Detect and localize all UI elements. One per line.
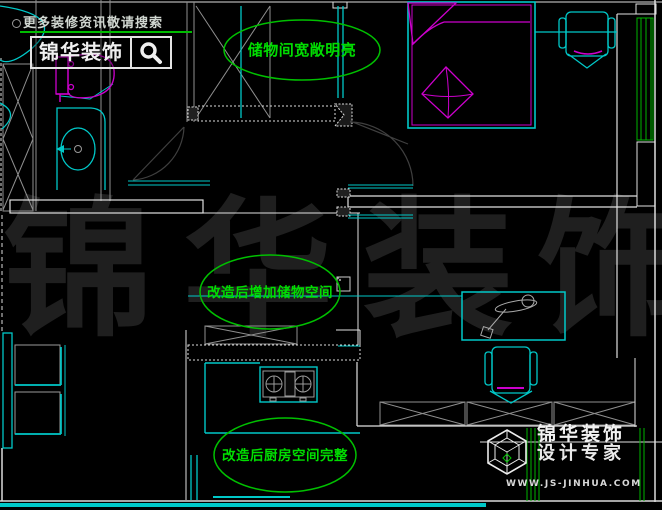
kitchen-wall-hatch xyxy=(188,345,360,360)
watermark-char: 装 xyxy=(363,182,513,358)
bedroom-door xyxy=(350,121,413,186)
brand-search-box: 锦华装饰 xyxy=(30,36,172,69)
annotation-added-storage: 改造后增加储物空间 xyxy=(207,284,333,301)
pillow xyxy=(422,67,473,118)
gas-stove xyxy=(263,371,314,401)
cad-floorplan-screenshot: { "header": { "search_hint": "更多装修资讯敬请搜索… xyxy=(0,0,662,510)
bathroom-door xyxy=(133,127,184,180)
study-cabinet-row xyxy=(380,402,635,425)
kitchen-counter xyxy=(205,363,360,433)
bedroom-chair xyxy=(559,12,615,68)
watermark-char: 锦 xyxy=(3,182,153,358)
footer-logo: 锦华装饰 设计专家 WWW.JS-JINHUA.COM xyxy=(484,424,660,489)
storage-closet-x xyxy=(196,6,270,118)
bed-linen xyxy=(412,5,531,125)
footer-tagline: 设计专家 xyxy=(537,444,625,463)
door-swings xyxy=(133,121,413,186)
footer-company: 锦华装饰 xyxy=(537,424,625,444)
watermark-char: 饰 xyxy=(537,182,662,358)
blanket-fold xyxy=(408,3,456,44)
bullet-icon xyxy=(12,19,21,28)
search-icon xyxy=(138,40,164,66)
search-hint-text: 更多装修资讯敬请搜索 xyxy=(23,12,163,31)
annotation-kitchen: 改造后厨房空间完整 xyxy=(222,447,348,464)
appliance-box xyxy=(15,392,60,434)
search-button[interactable] xyxy=(130,38,170,67)
cube-logo-icon xyxy=(484,428,530,476)
annotation-storage-room: 储物间宽敞明亮 xyxy=(248,41,357,59)
footer-website: WWW.JS-JINHUA.COM xyxy=(506,479,660,489)
bed-frame xyxy=(408,2,535,128)
bathroom-sink xyxy=(56,108,105,190)
watermark: 锦 华 装 饰 xyxy=(3,182,662,358)
green-underline xyxy=(20,31,192,33)
brand-logo-text: 锦华装饰 xyxy=(32,38,130,67)
